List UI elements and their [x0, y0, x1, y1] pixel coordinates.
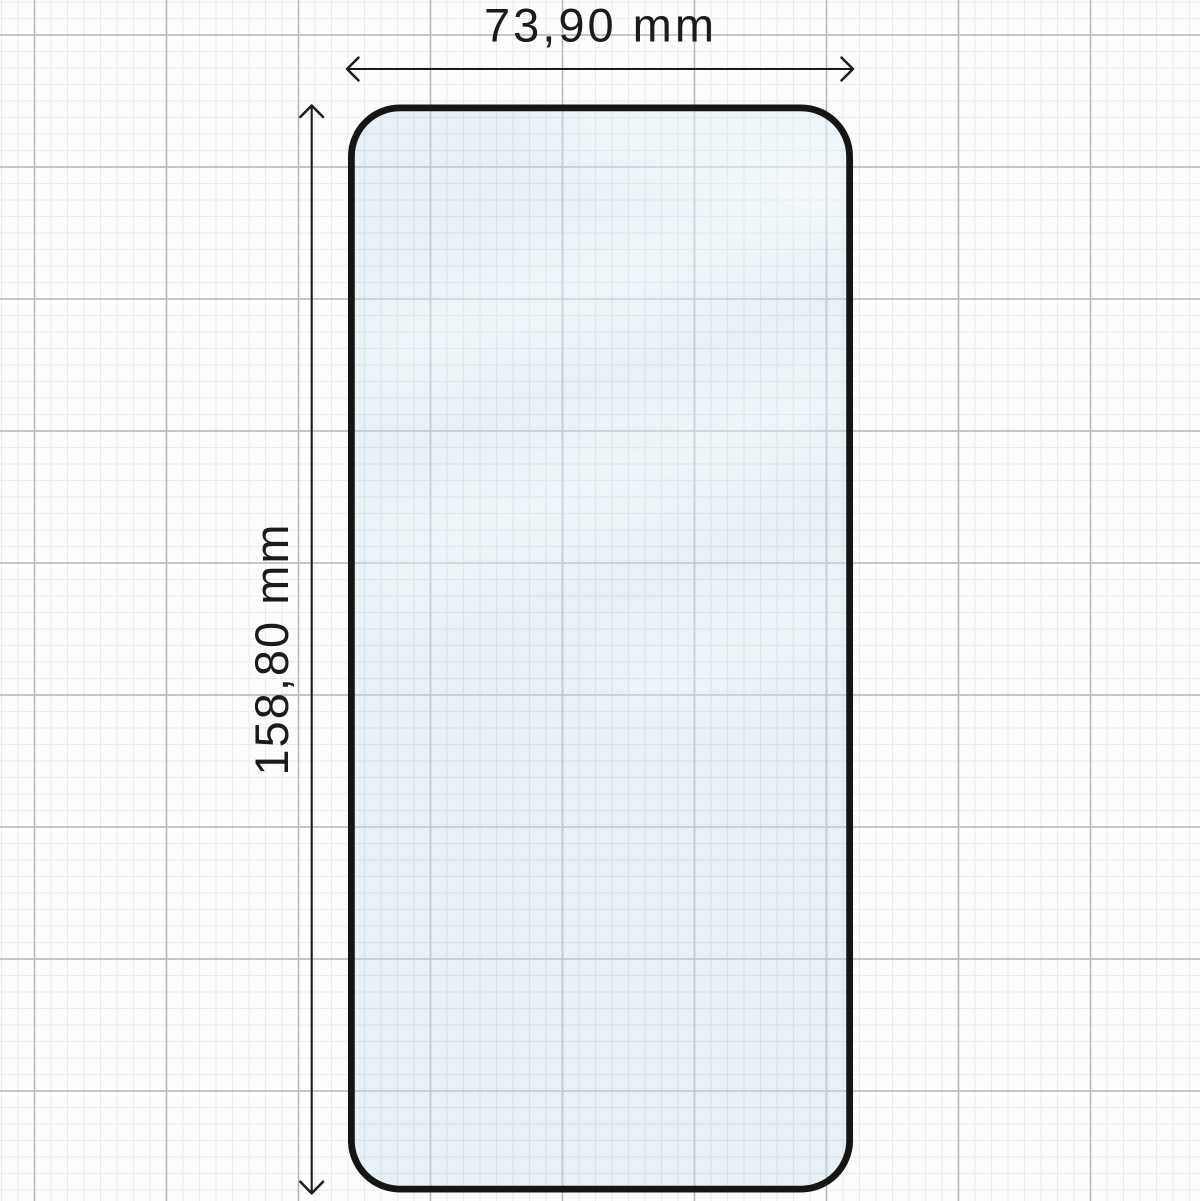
- svg-text:73,90 mm: 73,90 mm: [484, 0, 717, 52]
- svg-text:158,80 mm: 158,80 mm: [245, 522, 298, 775]
